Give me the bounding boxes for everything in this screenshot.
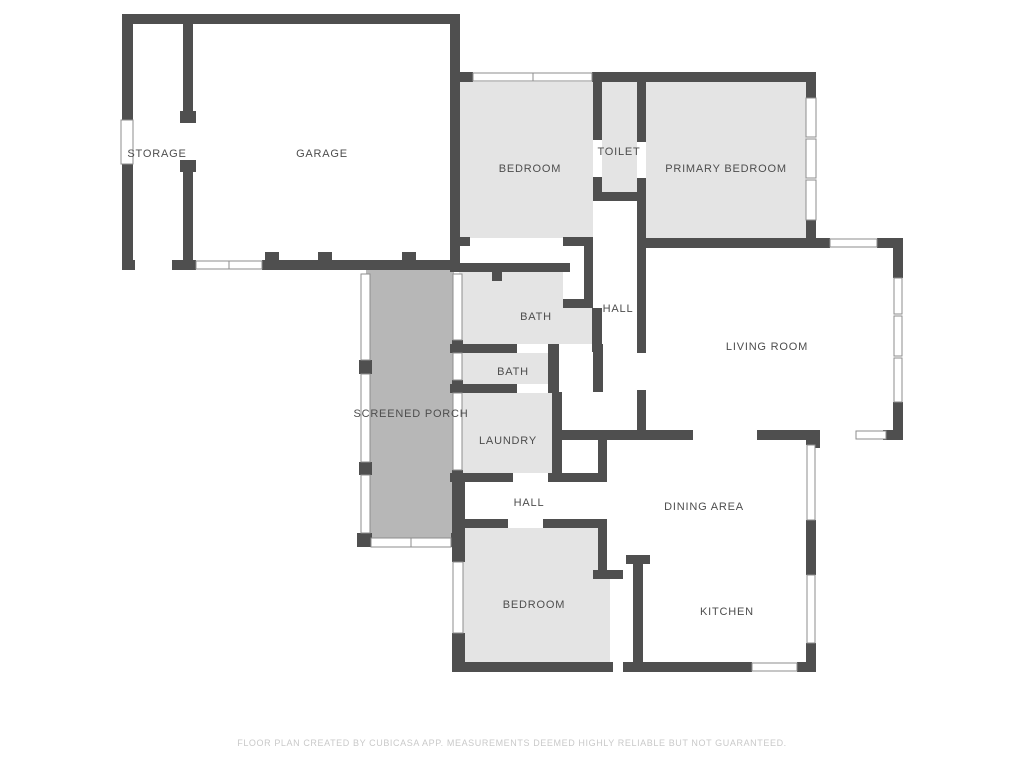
room-label-bath-1: BATH [520, 311, 552, 323]
wall-segment [646, 72, 807, 82]
wall-segment [122, 260, 135, 270]
room-fill-screened-porch-fill [366, 268, 454, 538]
window [894, 358, 902, 402]
wall-segment [593, 570, 623, 579]
wall-segment [598, 440, 607, 475]
wall-segment [584, 246, 593, 308]
wall-segment [183, 24, 193, 123]
wall-segment [637, 82, 646, 142]
wall-segment [450, 14, 460, 260]
window [533, 73, 592, 81]
room-label-living-room: LIVING ROOM [726, 341, 808, 353]
room-label-kitchen: KITCHEN [700, 606, 754, 618]
wall-segment [450, 237, 470, 246]
wall-segment [548, 473, 607, 482]
wall-segment [806, 643, 816, 672]
room-fill-bedroom-top-fill [460, 82, 593, 238]
wall-segment [359, 360, 372, 374]
wall-segment [262, 260, 460, 270]
wall-segment [552, 430, 647, 440]
room-label-toilet: TOILET [597, 146, 640, 158]
window [830, 239, 877, 247]
wall-segment [265, 252, 279, 261]
wall-segment [548, 384, 559, 393]
room-label-primary-bedroom: PRIMARY BEDROOM [665, 163, 787, 175]
room-fill-bedroom-bottom-ext [598, 578, 610, 662]
room-fill-closet-interior [563, 246, 584, 299]
window [361, 274, 370, 360]
window [361, 475, 370, 533]
wall-segment [455, 72, 473, 82]
wall-segment [452, 519, 508, 528]
wall-segment [183, 160, 193, 260]
room-fill-laundry-fill [459, 393, 552, 473]
wall-segment [598, 519, 607, 578]
room-fill-primary-bedroom-fill [646, 82, 806, 238]
window [229, 261, 262, 269]
room-label-garage: GARAGE [296, 148, 348, 160]
wall-segment [402, 252, 416, 261]
wall-segment [806, 432, 816, 445]
wall-segment [122, 164, 133, 270]
footer-disclaimer: FLOOR PLAN CREATED BY CUBICASA APP. MEAS… [0, 738, 1024, 748]
wall-segment [563, 237, 593, 246]
room-label-bedroom-bottom: BEDROOM [503, 599, 565, 611]
window [453, 393, 462, 470]
wall-segment [633, 555, 643, 667]
wall-segment [122, 24, 133, 120]
room-label-hall-lower: HALL [514, 497, 545, 509]
room-label-storage: STORAGE [127, 148, 186, 160]
wall-segment [180, 160, 196, 172]
window [371, 538, 411, 547]
wall-segment [893, 238, 903, 278]
wall-segment [450, 263, 570, 272]
wall-segment [359, 462, 372, 475]
room-label-bedroom-top: BEDROOM [499, 163, 561, 175]
window [894, 278, 902, 314]
wall-segment [122, 14, 460, 24]
wall-segment [637, 192, 646, 353]
window [806, 98, 816, 137]
room-label-bath-2: BATH [497, 366, 529, 378]
wall-segment [626, 555, 650, 564]
wall-segment [451, 533, 465, 547]
wall-segment [452, 662, 613, 672]
wall-segment [172, 260, 196, 270]
window [856, 431, 886, 439]
window [894, 316, 902, 356]
wall-segment [452, 380, 463, 393]
wall-segment [357, 533, 372, 547]
window [453, 274, 462, 340]
wall-segment [806, 72, 816, 98]
room-label-screened-porch: SCREENED PORCH [353, 408, 468, 420]
wall-segment [593, 344, 603, 392]
floor-plan: STORAGEGARAGEBEDROOMTOILETPRIMARY BEDROO… [0, 0, 1024, 768]
wall-segment [492, 272, 502, 281]
wall-segment [318, 252, 332, 261]
wall-segment [593, 177, 602, 192]
window [453, 562, 463, 633]
window [806, 180, 816, 220]
room-fill-toilet-fill [602, 82, 637, 192]
wall-segment [593, 82, 602, 140]
room-label-laundry: LAUNDRY [479, 435, 537, 447]
room-fill-bedroom-bottom-fill [462, 528, 598, 662]
wall-segment [637, 238, 830, 248]
wall-segment [806, 520, 816, 575]
room-label-dining-area: DINING AREA [664, 501, 744, 513]
window [196, 261, 229, 269]
window [473, 73, 533, 81]
wall-segment [637, 178, 646, 192]
wall-segment [180, 111, 196, 123]
wall-segment [452, 470, 463, 483]
window [752, 663, 797, 671]
window [453, 353, 462, 380]
room-label-hall-upper: HALL [603, 303, 634, 315]
window [807, 575, 815, 643]
window [411, 538, 451, 547]
wall-segment [592, 72, 646, 82]
wall-segment [543, 519, 607, 528]
floor-plan-drawing: STORAGEGARAGEBEDROOMTOILETPRIMARY BEDROO… [0, 0, 1024, 768]
window [807, 445, 815, 520]
window [806, 139, 816, 178]
wall-segment [563, 299, 593, 308]
wall-segment [452, 340, 463, 353]
